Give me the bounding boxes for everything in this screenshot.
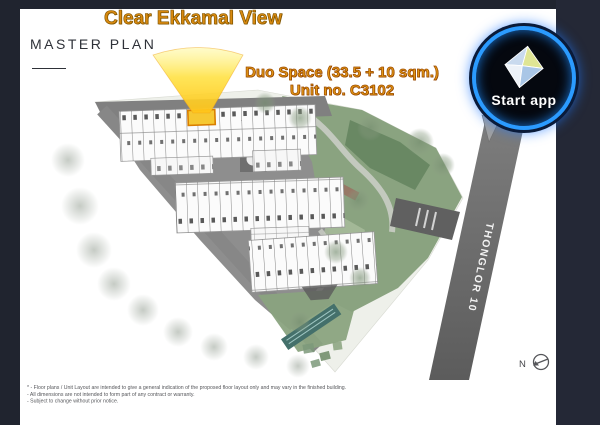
disclaimer-line1: * - Floor plans / Unit Layout are intend… bbox=[27, 385, 587, 392]
compass-n-label: N bbox=[519, 359, 526, 370]
page-title: MASTER PLAN bbox=[30, 36, 156, 52]
title-underline bbox=[32, 68, 66, 69]
disclaimer-line2: - All dimensions are not intended to for… bbox=[27, 392, 587, 399]
compass-icon: N bbox=[519, 355, 549, 371]
frame-top-strip bbox=[0, 0, 600, 9]
thonglor-road bbox=[429, 112, 527, 380]
start-app-button[interactable]: Start app bbox=[472, 26, 576, 130]
unit-callout: Duo Space (33.5 + 10 sqm.) Unit no. C310… bbox=[228, 64, 456, 100]
disclaimer-line3: - Subject to change without prior notice… bbox=[27, 399, 587, 406]
disclaimer-text: * - Floor plans / Unit Layout are intend… bbox=[27, 385, 587, 405]
view-callout: Clear Ekkamal View bbox=[104, 8, 282, 30]
master-plan-page: THONGLOR 10 N MASTER PLAN Clear Ekkamal … bbox=[0, 0, 600, 425]
unit-callout-line2: Unit no. C3102 bbox=[228, 82, 456, 100]
frame-left-strip bbox=[0, 0, 20, 425]
unit-callout-line1: Duo Space (33.5 + 10 sqm.) bbox=[228, 64, 456, 82]
start-app-label: Start app bbox=[491, 92, 556, 108]
diamond-gem-icon bbox=[499, 41, 548, 94]
